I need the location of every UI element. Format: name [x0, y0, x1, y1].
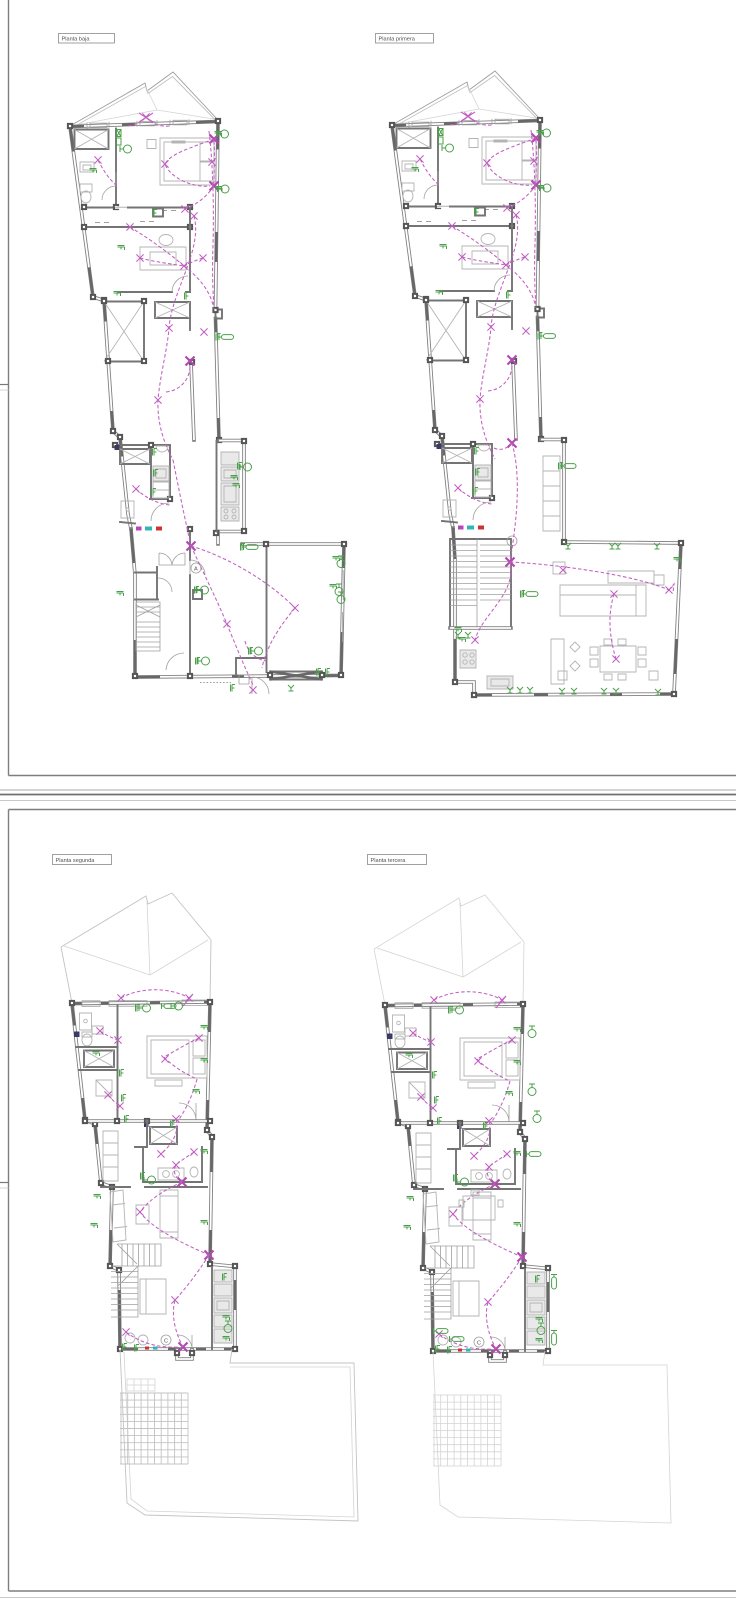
svg-text:Planta segunda: Planta segunda — [56, 858, 96, 864]
svg-text:Planta primera: Planta primera — [379, 37, 416, 43]
svg-text:C: C — [164, 1339, 168, 1345]
svg-text:Planta baja: Planta baja — [62, 37, 91, 43]
svg-text:A: A — [194, 567, 198, 573]
svg-text:C: C — [477, 1341, 481, 1347]
svg-text:Planta tercera: Planta tercera — [371, 858, 407, 864]
